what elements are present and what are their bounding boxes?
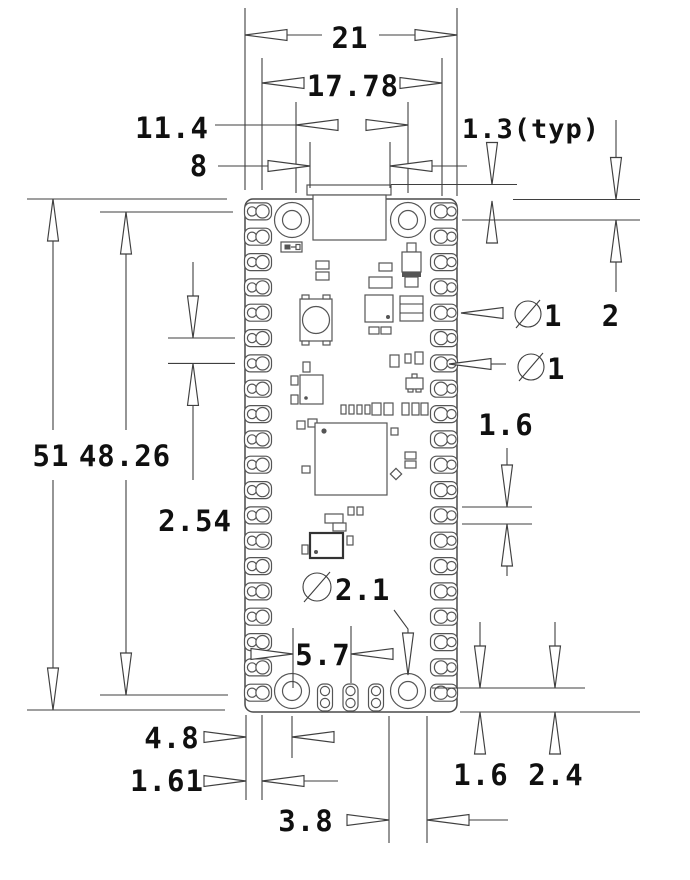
pin-pad <box>431 482 458 499</box>
pin-pad <box>431 507 458 524</box>
mounting-hole-bottom-right <box>391 674 426 709</box>
dim-label-usb-overhang: 1.3(typ) <box>462 114 600 145</box>
dim-label-pad-edge-offset: 1.61 <box>130 764 204 798</box>
mounting-hole-bottom-left <box>275 674 310 709</box>
dim-label-hole-pad-diameter: 3.8 <box>278 804 333 838</box>
pin-pad <box>245 304 272 321</box>
pin-pad <box>431 406 458 423</box>
dim-castellation-diameter: 1 <box>449 352 565 386</box>
pin-pad <box>431 203 458 220</box>
capacitor <box>316 272 329 280</box>
dim-label-usb-width: 8 <box>190 149 208 183</box>
dim-label-board-width: 21 <box>332 21 369 55</box>
mounting-hole-top-left <box>275 203 310 238</box>
pin-pad <box>245 507 272 524</box>
pin-pad <box>245 355 272 372</box>
pin-pad <box>431 380 458 397</box>
pin-pad <box>431 254 458 271</box>
pin-pad <box>245 659 272 676</box>
capacitor <box>303 362 310 372</box>
pin-pad <box>245 558 272 575</box>
pin-pad <box>245 583 272 600</box>
capacitor <box>297 421 305 429</box>
swd-pads <box>318 684 384 711</box>
mechanical-drawing-page: 21 17.78 11.4 8 1.3(typ) <box>0 0 690 880</box>
pin-pad <box>245 380 272 397</box>
pin-pad <box>431 634 458 651</box>
dim-label-pin-hole-diameter: 1 <box>544 299 562 333</box>
bootsel-button <box>300 295 332 345</box>
pin-pad <box>431 279 458 296</box>
capacitor <box>381 327 391 334</box>
pin-pad <box>431 330 458 347</box>
mounting-hole-top-right <box>391 203 426 238</box>
pin-pad <box>431 228 458 245</box>
pin-pad <box>245 634 272 651</box>
pin-pad <box>245 279 272 296</box>
pin-pad <box>431 304 458 321</box>
capacitor <box>302 466 310 473</box>
pico-mechanical-drawing: 21 17.78 11.4 8 1.3(typ) <box>0 0 690 880</box>
pin-pad <box>245 456 272 473</box>
pin-pad <box>245 482 272 499</box>
dim-label-pin-pitch: 2.54 <box>158 504 232 538</box>
capacitor <box>405 452 416 459</box>
capacitor-row <box>341 403 428 415</box>
inductor <box>400 296 423 321</box>
capacitor <box>391 428 398 435</box>
capacitor <box>405 461 416 468</box>
dim-pad-length-bottom: 1.6 <box>453 622 508 792</box>
swd-pad <box>369 684 384 711</box>
pin-pad <box>431 583 458 600</box>
usb-connector <box>307 185 391 240</box>
dim-pin-row-span: 48.26 <box>79 212 233 695</box>
pin-pad <box>245 532 272 549</box>
dim-pin-hole-diameter: 1 <box>461 299 562 333</box>
usb-lip <box>307 185 391 195</box>
capacitor <box>369 277 392 288</box>
pin-pad <box>245 608 272 625</box>
dim-label-pad-length-bottom: 1.6 <box>453 758 508 792</box>
pin-pad <box>245 330 272 347</box>
pin-pad <box>245 684 272 701</box>
pin-pad <box>431 608 458 625</box>
pin-pad <box>245 228 272 245</box>
pin-pad <box>245 431 272 448</box>
capacitor <box>348 507 354 515</box>
dim-label-swd-offset: 5.7 <box>295 638 350 672</box>
usb-body <box>313 195 386 240</box>
dim-pad-edge-offset: 1.61 <box>130 764 338 798</box>
pin-pad <box>431 456 458 473</box>
dim-label-hole-span: 11.4 <box>135 111 209 145</box>
dim-hole-span: 11.4 <box>135 102 408 193</box>
pin-pad <box>245 203 272 220</box>
led <box>281 242 302 252</box>
dim-pad-length-right: 1.6 <box>462 408 534 576</box>
dim-label-hole-bottom-offset: 2.4 <box>528 758 583 792</box>
capacitor <box>405 354 411 363</box>
dim-usb-width: 8 <box>190 142 467 188</box>
dim-label-pad-length-right: 1.6 <box>478 408 533 442</box>
pin-pad <box>245 254 272 271</box>
capacitor <box>333 523 346 531</box>
dim-label-hole-left-offset: 4.8 <box>144 721 199 755</box>
capacitor <box>316 261 329 269</box>
pin-pad <box>431 684 458 701</box>
dim-pin-column-span: 17.78 <box>262 58 442 196</box>
capacitor <box>325 514 343 523</box>
capacitor <box>415 352 423 364</box>
dim-label-mount-hole-diameter: 2.1 <box>335 573 390 607</box>
pin-pad <box>431 659 458 676</box>
swd-pad <box>318 684 333 711</box>
pin-pad <box>431 532 458 549</box>
capacitor <box>369 327 379 334</box>
dim-label-board-length: 51 <box>33 439 70 473</box>
dim-label-pin-column-span: 17.78 <box>307 69 399 103</box>
dim-label-castellation-diameter: 1 <box>547 352 565 386</box>
dim-hole-bottom-offset: 2.4 <box>528 622 583 792</box>
dim-label-pin-row-span: 48.26 <box>79 439 171 473</box>
pin-pad <box>431 558 458 575</box>
regulator-chip <box>365 295 393 322</box>
dim-label-hole-top-offset: 2 <box>602 299 620 333</box>
rp2040-chip <box>315 423 387 495</box>
dim-pin-pitch: 2.54 <box>158 262 235 538</box>
pin-pad <box>245 406 272 423</box>
swd-pad <box>343 684 358 711</box>
pin-pad <box>431 431 458 448</box>
capacitor <box>390 355 399 367</box>
capacitor <box>379 263 392 271</box>
capacitor <box>357 507 363 515</box>
